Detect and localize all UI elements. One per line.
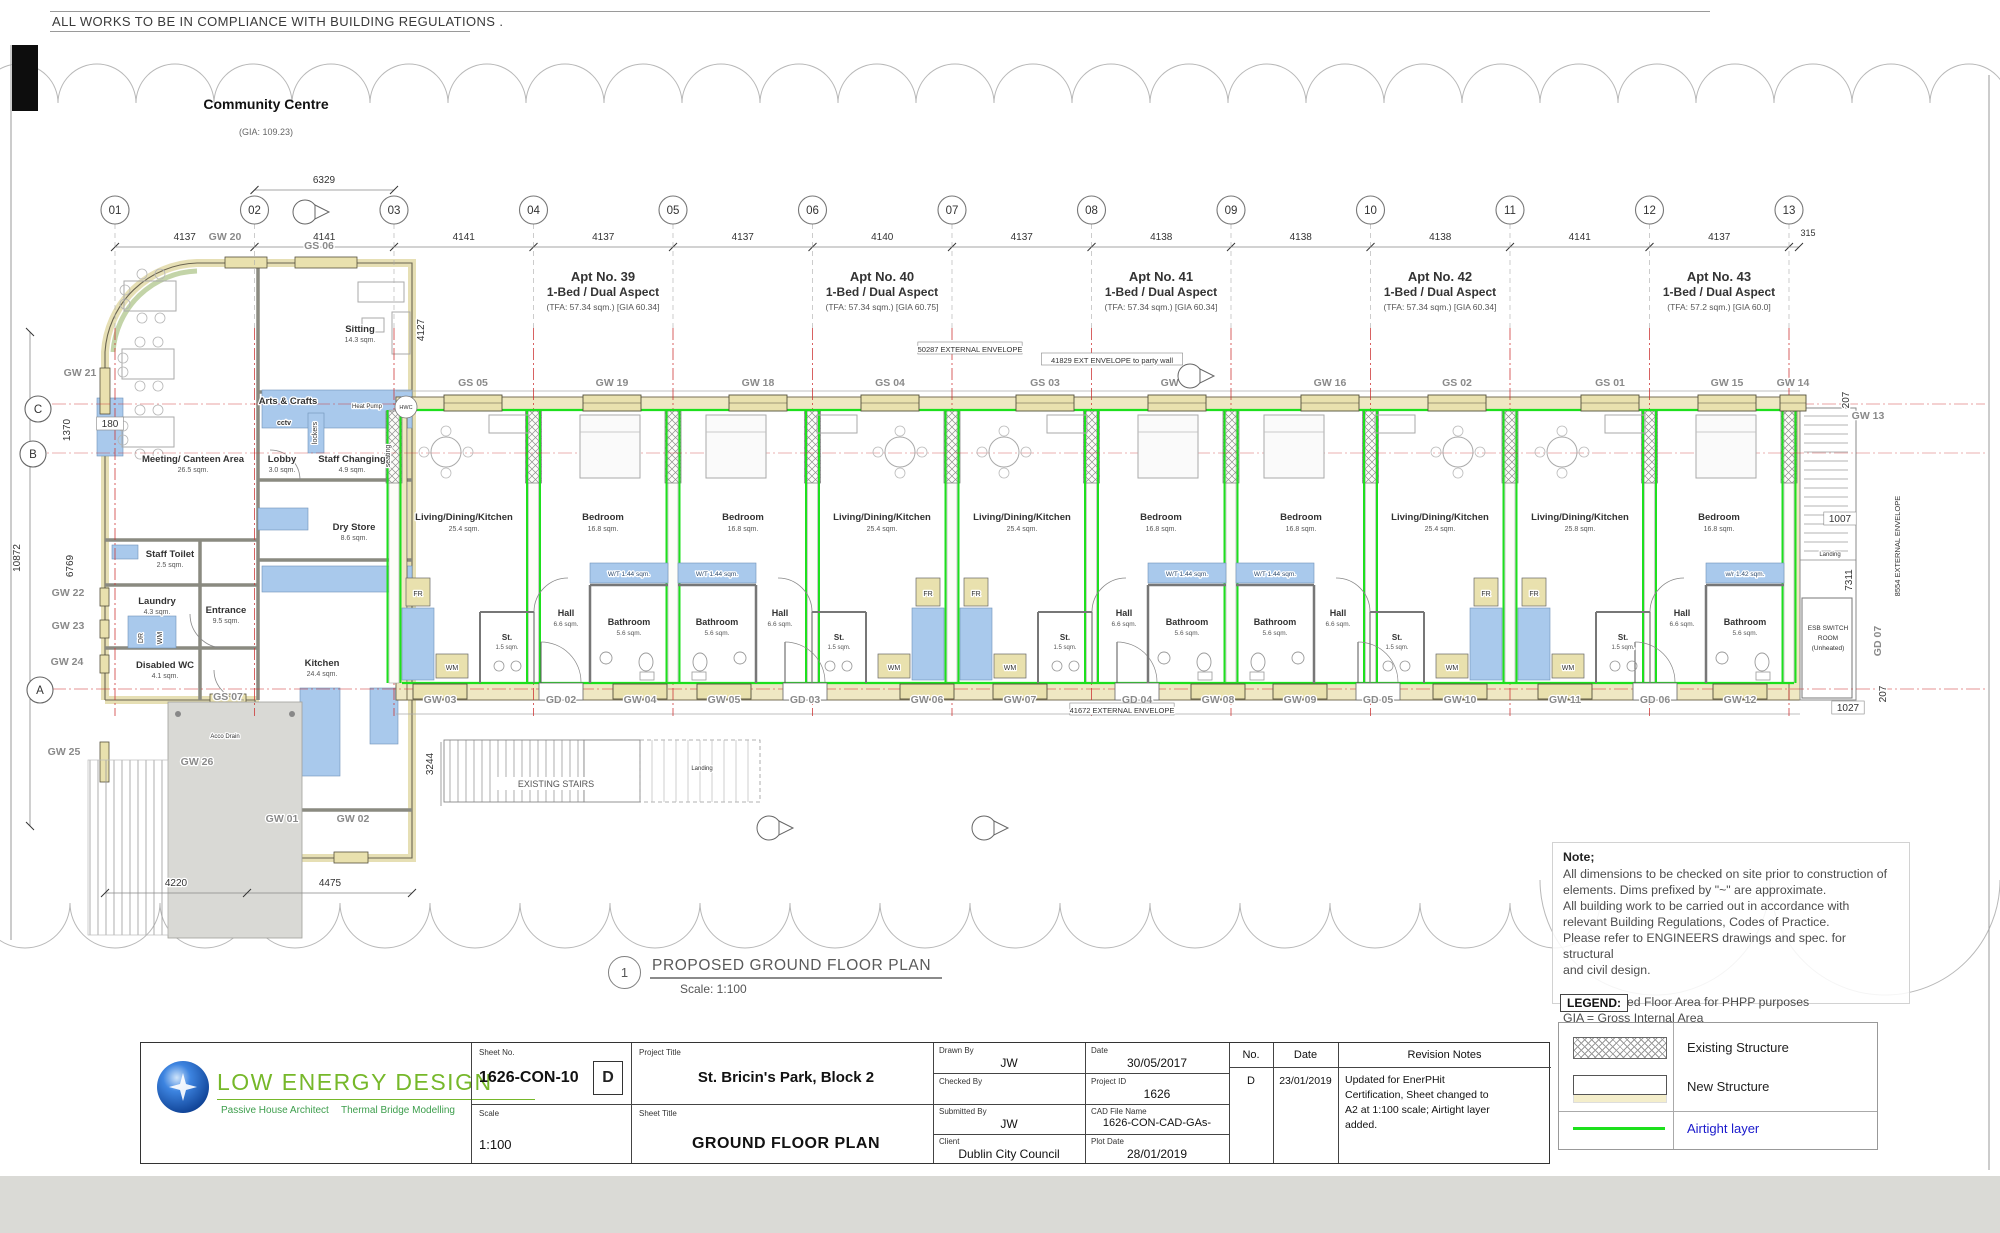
- grid-bubble-label: 08: [1085, 205, 1098, 217]
- opening-label-misc: GW 25: [48, 746, 81, 758]
- room-bedroom: Bedroom: [722, 512, 764, 523]
- grid-dim: 4137: [732, 232, 755, 243]
- note-line: relevant Building Regulations, Codes of …: [1563, 914, 1899, 930]
- opening-label-misc: GD 07: [1872, 626, 1884, 657]
- fridge-label: FR: [1529, 591, 1538, 598]
- section-marker-arrow: [315, 205, 329, 219]
- room-bedroom: Bedroom: [1140, 512, 1182, 523]
- chair: [1557, 468, 1567, 478]
- cc-chair: [137, 269, 147, 279]
- room-store: St.: [834, 633, 844, 642]
- opening-label-misc: GW 21: [64, 367, 97, 379]
- room-hall-area: 6.6 sqm.: [768, 621, 793, 628]
- door-swing-arc: [541, 642, 581, 682]
- rev-note-line: A2 at 1:100 scale; Airtight layer: [1345, 1103, 1549, 1118]
- opening-label-bottom: GW 05: [708, 694, 741, 706]
- cc-small-label: DR: [138, 633, 145, 643]
- dim-label: 207: [1878, 685, 1889, 702]
- room-hall-area: 6.6 sqm.: [1112, 621, 1137, 628]
- cc-chair: [153, 337, 163, 347]
- room-bathroom: Bathroom: [608, 617, 651, 627]
- room-store-area: 1.5 sqm.: [1053, 645, 1076, 651]
- room-hall: Hall: [1330, 608, 1347, 618]
- sofa: [1605, 415, 1645, 433]
- dim-label: 6329: [313, 175, 336, 186]
- room-bedroom-area: 16.8 sqm.: [1146, 526, 1177, 533]
- rev-no-header: No.: [1229, 1049, 1273, 1061]
- wt-label: W/T 1.44 sqm.: [696, 571, 738, 578]
- room-ldk-area: 25.8 sqm.: [1565, 526, 1596, 533]
- store-sink: [511, 661, 521, 671]
- basin: [1716, 652, 1728, 664]
- room-ldk: Living/Dining/Kitchen: [973, 512, 1071, 523]
- opening-label-bottom: GW 04: [624, 694, 657, 706]
- cc-sofa: [358, 282, 404, 302]
- room-bedroom: Bedroom: [1280, 512, 1322, 523]
- cc-chair: [153, 405, 163, 415]
- date-label: Date: [1091, 1046, 1108, 1055]
- plot-date-value: 28/01/2019: [1091, 1147, 1223, 1161]
- cc-room-area: 24.4 sqm.: [307, 671, 338, 678]
- opening-label-misc: GW 22: [52, 587, 85, 599]
- room-ldk: Living/Dining/Kitchen: [833, 512, 931, 523]
- cc-room-label: Staff Toilet: [146, 549, 195, 560]
- grid-bubble-label: 10: [1364, 205, 1377, 217]
- logo-company-name: LOW ENERGY DESIGN: [217, 1069, 493, 1096]
- grid-dim: 4137: [592, 232, 615, 243]
- cc-room-label: Arts & Crafts: [259, 396, 318, 407]
- basin: [600, 652, 612, 664]
- dim-label: 1027: [1837, 703, 1860, 714]
- apt-type: 1-Bed / Dual Aspect: [1105, 285, 1217, 299]
- rev-notes-header: Revision Notes: [1338, 1049, 1551, 1061]
- rev-entry-no: D: [1229, 1075, 1273, 1087]
- cc-small-label: lockers: [312, 421, 319, 444]
- plan-scale: Scale: 1:100: [680, 982, 747, 996]
- opening-label-top: GW 14: [1777, 377, 1810, 389]
- bed: [1138, 415, 1198, 478]
- legend-new-label: New Structure: [1687, 1079, 1769, 1094]
- note-line: Please refer to ENGINEERS drawings and s…: [1563, 930, 1899, 962]
- sheet-revision-letter: D: [593, 1061, 623, 1095]
- logo-subtitle-thermal-bridge: Thermal Bridge Modelling: [341, 1105, 455, 1116]
- grid-dim: 4138: [1290, 232, 1313, 243]
- toilet: [639, 653, 653, 671]
- cc-room-area: 14.3 sqm.: [345, 337, 376, 344]
- chair: [1453, 468, 1463, 478]
- opening-label-bottom: GD 03: [790, 694, 821, 706]
- envelope-label: 8554 EXTERNAL ENVELOPE: [1893, 496, 1902, 597]
- notes-panel: Note; All dimensions to be checked on si…: [1552, 842, 1910, 1004]
- section-marker-arrow: [1200, 369, 1214, 383]
- room-store: St.: [1618, 633, 1628, 642]
- room-bedroom: Bedroom: [1698, 512, 1740, 523]
- sofa: [1047, 415, 1087, 433]
- grid-dim: 4138: [1429, 232, 1452, 243]
- room-hall-area: 6.6 sqm.: [1670, 621, 1695, 628]
- community-centre-title: Community Centre: [178, 96, 354, 112]
- existing-stairs-landing: [584, 740, 640, 802]
- door-swing-arc: [1117, 642, 1157, 682]
- legend-panel: Existing Structure New Structure Airtigh…: [1558, 1022, 1878, 1150]
- chair: [1475, 447, 1485, 457]
- cc-window: [334, 852, 368, 863]
- wm-label: WM: [1004, 665, 1017, 672]
- chair: [441, 426, 451, 436]
- dim-label: 4475: [319, 878, 342, 889]
- cc-room-label: Staff Changing: [318, 454, 386, 465]
- cc-fixture: [112, 545, 138, 559]
- bed: [1696, 415, 1756, 478]
- wt-label: W/T 1.44 sqm.: [1166, 571, 1208, 578]
- note-line: [1563, 978, 1899, 994]
- note-line: elements. Dims prefixed by "~" are appro…: [1563, 882, 1899, 898]
- cad-file-value: 1626-CON-CAD-GAs-: [1091, 1117, 1223, 1129]
- title-block: LOW ENERGY DESIGN Passive House Architec…: [140, 1042, 1550, 1164]
- room-store-area: 1.5 sqm.: [827, 645, 850, 651]
- room-bedroom-area: 16.8 sqm.: [1704, 526, 1735, 533]
- drawing-sheet: ESB SWITCHROOM(Unheated)0141370241410341…: [0, 0, 2000, 1233]
- opening-label-bottom: GW 10: [1444, 694, 1477, 706]
- toilet: [1251, 653, 1265, 671]
- opening-label-misc: GW 26: [181, 756, 214, 768]
- room-ldk-area: 25.4 sqm.: [449, 526, 480, 533]
- chair: [1431, 447, 1441, 457]
- cc-small-label: WM: [157, 632, 164, 645]
- store-sink: [1383, 661, 1393, 671]
- cad-file-label: CAD File Name: [1091, 1107, 1147, 1116]
- checked-by-label: Checked By: [939, 1077, 982, 1086]
- opening-label-bottom: GW 06: [911, 694, 944, 706]
- apt-areas: (TFA: 57.34 sqm.) [GIA 60.75]: [826, 302, 939, 312]
- grid-dim: 4137: [1011, 232, 1034, 243]
- chair: [1557, 426, 1567, 436]
- bed: [1264, 415, 1324, 478]
- room-store: St.: [1060, 633, 1070, 642]
- room-ldk-area: 25.4 sqm.: [1007, 526, 1038, 533]
- apt-number: Apt No. 41: [1129, 269, 1193, 284]
- chair: [999, 468, 1009, 478]
- opening-label-misc: GW 23: [52, 620, 85, 632]
- opening-label-top: GW 15: [1711, 377, 1744, 389]
- cc-room-area: 4.1 sqm.: [152, 673, 179, 680]
- project-title-value: St. Bricin's Park, Block 2: [646, 1069, 926, 1086]
- cc-room-label: Entrance: [206, 605, 247, 616]
- rev-entry-notes: Updated for EnerPHitCertification, Sheet…: [1345, 1073, 1549, 1133]
- apt-number: Apt No. 39: [571, 269, 635, 284]
- chair: [977, 447, 987, 457]
- wm-label: WM: [446, 665, 459, 672]
- fridge-label: FR: [971, 591, 980, 598]
- rev-note-line: added.: [1345, 1118, 1549, 1133]
- bed: [706, 415, 766, 478]
- grid-bubble-label: 06: [806, 205, 819, 217]
- dim-label: 1370: [62, 418, 73, 441]
- sofa: [489, 415, 529, 433]
- room-hall-area: 6.6 sqm.: [1326, 621, 1351, 628]
- opening-label-misc: GW 20: [209, 231, 242, 243]
- opening-label-top: GS 04: [875, 377, 905, 389]
- wt-label: w/r 1.42 sqm.: [1724, 571, 1764, 578]
- chair: [895, 468, 905, 478]
- cc-chair: [155, 313, 165, 323]
- fridge-label: FR: [1481, 591, 1490, 598]
- store-sink: [1400, 661, 1410, 671]
- dim-label: 3244: [425, 752, 436, 775]
- existing-stairs-flight: [444, 740, 584, 802]
- dining-table: [885, 437, 915, 467]
- rev-note-line: Certification, Sheet changed to: [1345, 1088, 1549, 1103]
- cc-room-area: 4.3 sqm.: [144, 609, 171, 616]
- opening-label-top: GS 03: [1030, 377, 1060, 389]
- cc-room-area: 26.5 sqm.: [178, 467, 209, 474]
- opening-label-misc: GS 06: [304, 240, 334, 252]
- store-sink: [1610, 661, 1620, 671]
- row-marker-label: C: [34, 404, 42, 416]
- cc-sofa: [392, 312, 410, 354]
- kitchen-counter: [1518, 608, 1550, 680]
- opening-label-bottom: GD 06: [1640, 694, 1671, 706]
- chair: [917, 447, 927, 457]
- toilet: [1755, 653, 1769, 671]
- rev-note-line: Updated for EnerPHit: [1345, 1073, 1549, 1088]
- plan-title: PROPOSED GROUND FLOOR PLAN: [652, 957, 931, 975]
- section-marker: [1178, 364, 1202, 388]
- sheet-no-label: Sheet No.: [479, 1048, 515, 1057]
- cc-chair: [153, 381, 163, 391]
- apt-type: 1-Bed / Dual Aspect: [826, 285, 938, 299]
- scale-label: Scale: [479, 1109, 499, 1118]
- grid-dim: 4138: [1150, 232, 1173, 243]
- room-hall: Hall: [1116, 608, 1133, 618]
- grid-dim: 4137: [1708, 232, 1731, 243]
- room-hall: Hall: [772, 608, 789, 618]
- legend-existing-label: Existing Structure: [1687, 1040, 1789, 1055]
- room-bathroom-area: 5.6 sqm.: [705, 630, 730, 637]
- cc-window: [100, 368, 110, 414]
- grid-dim: 4140: [871, 232, 894, 243]
- grid-bubble-label: 13: [1783, 205, 1796, 217]
- dining-table: [989, 437, 1019, 467]
- dim-label: 1007: [1829, 514, 1852, 525]
- wm-label: WM: [1446, 665, 1459, 672]
- envelope-label: 41829 EXT ENVELOPE to party wall: [1051, 356, 1173, 365]
- basin: [1292, 652, 1304, 664]
- opening-label-bottom: GW 07: [1004, 694, 1037, 706]
- chair: [1021, 447, 1031, 457]
- sofa: [1375, 415, 1415, 433]
- cc-table: [122, 349, 174, 379]
- dining-table: [1547, 437, 1577, 467]
- bed: [580, 415, 640, 478]
- legend-new-swatch-cream: [1573, 1095, 1667, 1103]
- opening-label-misc: GW 01: [266, 813, 299, 825]
- cc-room-label: Disabled WC: [136, 660, 194, 671]
- opening-label-bottom: GW 09: [1284, 694, 1317, 706]
- legend-divider: [1673, 1023, 1674, 1149]
- client-label: Client: [939, 1137, 959, 1146]
- cc-window: [100, 588, 109, 606]
- section-marker-arrow: [994, 821, 1008, 835]
- cc-room-area: 8.6 sqm.: [341, 535, 368, 542]
- chair: [999, 426, 1009, 436]
- grid-bubble-label: 09: [1225, 205, 1238, 217]
- dim-label: 315: [1800, 228, 1815, 238]
- cc-fixture: [128, 616, 176, 648]
- toilet-cistern: [640, 672, 654, 680]
- toilet: [693, 653, 707, 671]
- logo-subtitle-passive-house: Passive House Architect: [221, 1105, 329, 1116]
- store-sink: [1052, 661, 1062, 671]
- cc-fixture: [300, 688, 340, 776]
- cc-room-label: Kitchen: [305, 658, 340, 669]
- room-bathroom-area: 5.6 sqm.: [617, 630, 642, 637]
- date-value: 30/05/2017: [1091, 1056, 1223, 1070]
- toilet-cistern: [1756, 672, 1770, 680]
- grid-bubble-label: 04: [527, 205, 540, 217]
- drawn-by-label: Drawn By: [939, 1046, 974, 1055]
- grid-bubble-label: 01: [109, 205, 122, 217]
- fridge-label: FR: [923, 591, 932, 598]
- opening-label-misc: GW 02: [337, 813, 370, 825]
- grid-bubble-label: 12: [1643, 205, 1656, 217]
- opening-label-bottom: GD 05: [1363, 694, 1394, 706]
- room-ldk-area: 25.4 sqm.: [867, 526, 898, 533]
- sofa: [817, 415, 857, 433]
- room-ldk: Living/Dining/Kitchen: [415, 512, 513, 523]
- opening-label-misc: GW 24: [51, 656, 84, 668]
- cc-small-label: seating: [385, 445, 392, 468]
- wt-label: W/T 1.44 sqm.: [608, 571, 650, 578]
- section-marker: [293, 200, 317, 224]
- room-ldk: Living/Dining/Kitchen: [1391, 512, 1489, 523]
- grid-dim: 4141: [453, 232, 476, 243]
- toilet-cistern: [1250, 672, 1264, 680]
- project-id-value: 1626: [1091, 1087, 1223, 1101]
- ramp-dot: [175, 711, 181, 717]
- fridge-label: FR: [413, 591, 422, 598]
- room-bedroom: Bedroom: [582, 512, 624, 523]
- kitchen-counter: [960, 608, 992, 680]
- chair: [419, 447, 429, 457]
- store-sink: [842, 661, 852, 671]
- legend-airtight-swatch: [1573, 1127, 1665, 1130]
- chair: [1453, 426, 1463, 436]
- basin: [734, 652, 746, 664]
- low-energy-design-logo-icon: [153, 1059, 223, 1129]
- grid-dim: 4141: [1569, 232, 1592, 243]
- chair: [1535, 447, 1545, 457]
- scale-value: 1:100: [479, 1137, 512, 1152]
- opening-label-top: GS 05: [458, 377, 488, 389]
- row-marker-label: B: [29, 449, 37, 461]
- chair: [1579, 447, 1589, 457]
- store-sink: [825, 661, 835, 671]
- apt-number: Apt No. 42: [1408, 269, 1472, 284]
- esb-room-label: ROOM: [1818, 635, 1838, 642]
- esb-room-label: (Unheated): [1812, 645, 1845, 652]
- cc-external-steps: [88, 760, 168, 935]
- cc-small-label: Landing: [691, 766, 712, 772]
- apt-areas: (TFA: 57.2 sqm.) [GIA 60.0]: [1667, 302, 1770, 312]
- section-marker: [972, 816, 996, 840]
- apt-areas: (TFA: 57.34 sqm.) [GIA 60.34]: [547, 302, 660, 312]
- drawn-by-value: JW: [939, 1056, 1079, 1070]
- opening-label-misc: GW 13: [1852, 410, 1885, 422]
- grid-bubble-label: 11: [1504, 205, 1516, 217]
- cc-small-label: Acco Drain: [210, 734, 239, 740]
- compliance-note: ALL WORKS TO BE IN COMPLIANCE WITH BUILD…: [52, 14, 503, 29]
- project-id-label: Project ID: [1091, 1077, 1126, 1086]
- cc-fixture: [258, 508, 308, 530]
- project-title-label: Project Title: [639, 1048, 681, 1057]
- grid-bubble-label: 05: [667, 205, 680, 217]
- note-line: All dimensions to be checked on site pri…: [1563, 866, 1899, 882]
- esb-room-label: ESB SWITCH: [1808, 625, 1849, 632]
- opening-label-top: GS 01: [1595, 377, 1625, 389]
- room-bedroom-area: 16.8 sqm.: [1286, 526, 1317, 533]
- apt-type: 1-Bed / Dual Aspect: [547, 285, 659, 299]
- toilet-cistern: [1198, 672, 1212, 680]
- section-marker-arrow: [779, 821, 793, 835]
- opening-label-bottom: GW 03: [424, 694, 457, 706]
- chair: [895, 426, 905, 436]
- submitted-by-value: JW: [939, 1117, 1079, 1131]
- cc-table: [122, 417, 174, 447]
- chair: [873, 447, 883, 457]
- legend-existing-swatch: [1573, 1037, 1667, 1059]
- room-bathroom-area: 5.6 sqm.: [1175, 630, 1200, 637]
- dim-label: 7311: [1844, 569, 1855, 591]
- wm-label: WM: [1562, 665, 1575, 672]
- opening-label-top: GW 18: [742, 377, 775, 389]
- grid-bubble-label: 02: [248, 205, 261, 217]
- kitchen-counter: [1470, 608, 1502, 680]
- cc-room-label: Lobby: [268, 454, 297, 465]
- opening-label-bottom: GW 11: [1549, 694, 1581, 706]
- cc-room-area: 4.9 sqm.: [339, 467, 366, 474]
- client-value: Dublin City Council: [939, 1147, 1079, 1161]
- rev-date-header: Date: [1273, 1049, 1338, 1061]
- room-bathroom-area: 5.6 sqm.: [1733, 630, 1758, 637]
- legend-title: LEGEND:: [1560, 994, 1628, 1012]
- room-hall-area: 6.6 sqm.: [554, 621, 579, 628]
- cc-small-label: HWC: [399, 405, 412, 411]
- opening-label-bottom: GW 12: [1724, 694, 1757, 706]
- apt-areas: (TFA: 57.34 sqm.) [GIA 60.34]: [1384, 302, 1497, 312]
- cc-chair: [135, 405, 145, 415]
- chair: [463, 447, 473, 457]
- room-store: St.: [502, 633, 512, 642]
- opening-label-top: GW 16: [1314, 377, 1347, 389]
- notes-heading: Note;: [1563, 849, 1899, 865]
- room-hall: Hall: [558, 608, 575, 618]
- dim-label: 6769: [65, 554, 76, 577]
- plot-date-label: Plot Date: [1091, 1137, 1124, 1146]
- wm-label: WM: [888, 665, 901, 672]
- ramp-dot: [289, 711, 295, 717]
- cc-small-label: Landing: [1819, 552, 1840, 558]
- section-marker: [757, 816, 781, 840]
- sheet-top-rule: [50, 11, 1710, 12]
- row-marker-label: A: [36, 685, 44, 697]
- dim-label: 180: [102, 419, 119, 430]
- room-bathroom: Bathroom: [696, 617, 739, 627]
- plan-number-bubble: 1: [608, 956, 641, 989]
- dim-label: 207: [1841, 391, 1852, 408]
- apt-number: Apt No. 40: [850, 269, 914, 284]
- room-ldk-area: 25.4 sqm.: [1425, 526, 1456, 533]
